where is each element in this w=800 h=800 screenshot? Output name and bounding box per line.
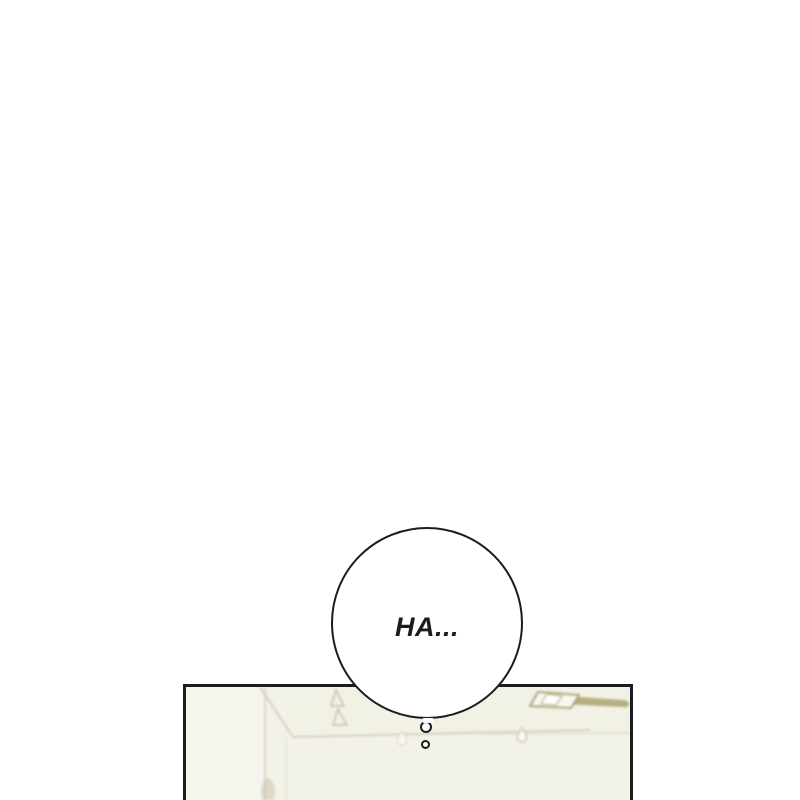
comic-page: HA... [0, 0, 800, 800]
thought-bubble-tail-joint [423, 718, 433, 723]
hanging-drop-icon [397, 731, 406, 745]
thought-bubble-text: HA... [395, 612, 459, 643]
left-wall-shade [186, 687, 265, 800]
picture-rail-line [486, 733, 630, 734]
thought-bubble-trail-circle [421, 740, 430, 749]
thought-bubble: HA... [331, 527, 523, 719]
